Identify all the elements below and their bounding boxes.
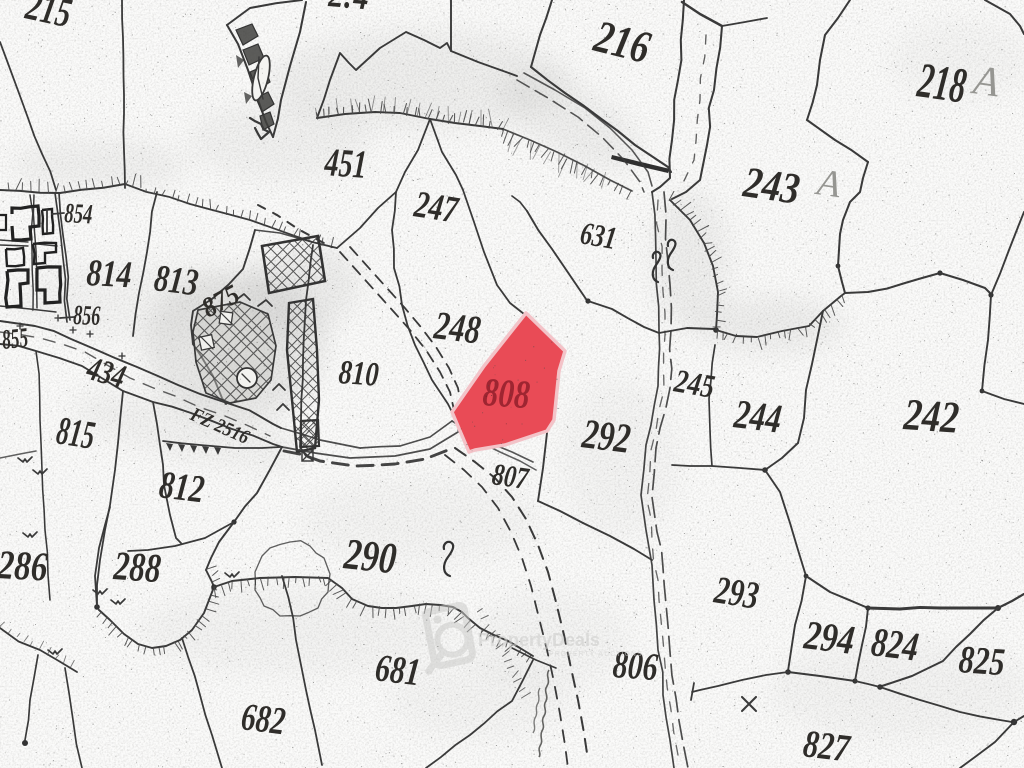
svg-text:290: 290 <box>341 529 399 583</box>
svg-text:856: 856 <box>73 300 101 332</box>
svg-text:827: 827 <box>801 722 853 768</box>
svg-text:PropertyDeals: PropertyDeals <box>478 630 600 650</box>
svg-text:451: 451 <box>323 139 369 187</box>
svg-text:812: 812 <box>157 463 207 511</box>
svg-text:681: 681 <box>373 646 423 694</box>
svg-text:854: 854 <box>64 198 94 230</box>
svg-text:814: 814 <box>86 252 133 296</box>
svg-text:855: 855 <box>0 322 29 356</box>
svg-text:682: 682 <box>239 695 288 743</box>
svg-text:807: 807 <box>490 456 532 496</box>
svg-text:218: 218 <box>914 51 970 113</box>
svg-text:294: 294 <box>801 611 857 663</box>
svg-text:813: 813 <box>152 257 201 304</box>
svg-text:286: 286 <box>0 541 49 590</box>
svg-text:815: 815 <box>54 407 99 457</box>
svg-text:243: 243 <box>740 157 803 213</box>
svg-text:292: 292 <box>579 411 633 463</box>
svg-text:PROPERTY AUCTIONS: PROPERTY AUCTIONS <box>549 651 643 658</box>
svg-text:245: 245 <box>671 363 717 406</box>
svg-text:288: 288 <box>112 542 163 591</box>
svg-text:248: 248 <box>431 302 483 352</box>
svg-text:806: 806 <box>611 643 659 689</box>
svg-text:810: 810 <box>337 354 379 394</box>
svg-text:631: 631 <box>578 214 620 256</box>
svg-text:824: 824 <box>869 618 921 669</box>
svg-text:293: 293 <box>711 568 762 617</box>
svg-text:244: 244 <box>731 390 784 441</box>
svg-text:825: 825 <box>957 638 1006 684</box>
svg-text:808: 808 <box>481 369 531 417</box>
svg-text:242: 242 <box>901 389 960 443</box>
